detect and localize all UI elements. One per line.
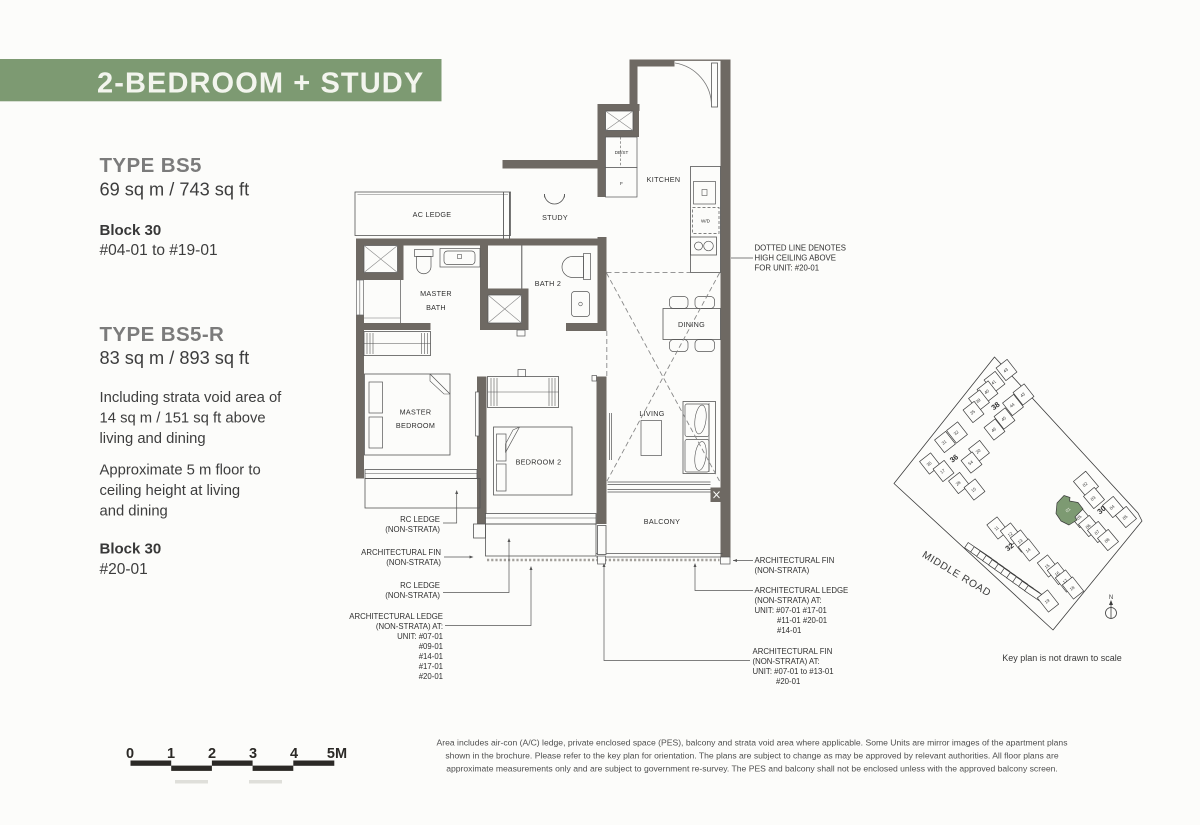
svg-text:4: 4 [290,746,298,762]
svg-text:2: 2 [208,746,216,762]
svg-text:2-BEDROOM + STUDY: 2-BEDROOM + STUDY [97,68,424,100]
svg-text:HIGH CEILING ABOVE: HIGH CEILING ABOVE [755,254,836,263]
svg-text:DOTTED LINE DENOTES: DOTTED LINE DENOTES [755,244,846,253]
svg-text:ARCHITECTURAL LEDGE: ARCHITECTURAL LEDGE [349,612,443,621]
svg-text:3: 3 [249,746,257,762]
svg-text:#20-01: #20-01 [100,561,148,578]
svg-text:BEDROOM: BEDROOM [396,421,435,430]
svg-text:0: 0 [126,746,134,762]
svg-text:and dining: and dining [100,504,168,520]
svg-text:MASTER: MASTER [420,289,452,298]
svg-text:#20-01: #20-01 [776,677,800,686]
svg-text:14 sq m / 151 sq ft above: 14 sq m / 151 sq ft above [100,411,266,427]
svg-text:LIVING: LIVING [639,409,664,418]
svg-text:RC LEDGE: RC LEDGE [400,581,440,590]
svg-text:(NON-STRATA) AT:: (NON-STRATA) AT: [755,596,822,605]
svg-text:shown in the brochure. Please: shown in the brochure. Please refer to t… [445,751,1058,761]
svg-text:Block 30: Block 30 [100,541,162,558]
svg-text:UNIT: #07-01: UNIT: #07-01 [397,632,443,641]
svg-text:UNIT: #07-01 to #13-01: UNIT: #07-01 to #13-01 [753,667,834,676]
svg-text:5M: 5M [327,746,347,762]
svg-text:FOR UNIT: #20-01: FOR UNIT: #20-01 [755,264,820,273]
svg-text:1: 1 [167,746,175,762]
svg-text:Area includes air-con (A/C) le: Area includes air-con (A/C) ledge, priva… [437,738,1068,748]
svg-text:ARCHITECTURAL LEDGE: ARCHITECTURAL LEDGE [755,586,849,595]
svg-text:BATH 2: BATH 2 [535,279,561,288]
svg-text:#17-01: #17-01 [419,662,443,671]
svg-text:#14-01: #14-01 [419,652,443,661]
svg-text:MASTER: MASTER [400,408,432,417]
svg-text:(NON-STRATA): (NON-STRATA) [385,525,440,534]
svg-text:#20-01: #20-01 [419,672,443,681]
svg-text:BEDROOM 2: BEDROOM 2 [516,458,562,467]
svg-text:#09-01: #09-01 [419,642,443,651]
svg-text:ARCHITECTURAL FIN: ARCHITECTURAL FIN [755,556,835,565]
svg-text:TYPE BS5-R: TYPE BS5-R [100,323,225,346]
svg-text:(NON-STRATA): (NON-STRATA) [755,566,810,575]
svg-text:ceiling height at living: ceiling height at living [100,483,241,499]
svg-text:#04-01 to #19-01: #04-01 to #19-01 [100,242,218,259]
svg-text:KITCHEN: KITCHEN [647,175,681,184]
svg-text:living and dining: living and dining [100,431,206,447]
svg-text:approximate measurements only: approximate measurements only and are su… [446,764,1058,774]
svg-text:TYPE BS5: TYPE BS5 [100,154,202,177]
svg-text:BATH: BATH [426,303,446,312]
svg-text:F: F [620,181,623,187]
svg-text:ARCHITECTURAL FIN: ARCHITECTURAL FIN [361,548,441,557]
svg-text:ARCHITECTURAL FIN: ARCHITECTURAL FIN [753,647,833,656]
svg-text:N: N [1109,595,1113,601]
svg-text:(NON-STRATA) AT:: (NON-STRATA) AT: [753,657,820,666]
svg-text:83 sq m / 893 sq ft: 83 sq m / 893 sq ft [100,348,250,368]
svg-text:Including strata void area of: Including strata void area of [100,390,283,406]
svg-text:Block 30: Block 30 [100,222,162,239]
svg-text:DB/ST: DB/ST [615,150,629,155]
svg-text:UNIT: #07-01 #17-01: UNIT: #07-01 #17-01 [755,606,827,615]
svg-text:RC LEDGE: RC LEDGE [400,515,440,524]
svg-text:#14-01: #14-01 [777,626,801,635]
svg-text:AC LEDGE: AC LEDGE [413,210,452,219]
svg-text:BALCONY: BALCONY [644,517,680,526]
svg-text:W/D: W/D [701,219,711,224]
svg-text:Key plan is not drawn to scale: Key plan is not drawn to scale [1002,653,1122,663]
svg-text:(NON-STRATA): (NON-STRATA) [385,591,440,600]
svg-text:#11-01 #20-01: #11-01 #20-01 [777,616,827,625]
svg-text:STUDY: STUDY [542,213,568,222]
svg-text:69 sq m / 743 sq ft: 69 sq m / 743 sq ft [100,180,250,200]
svg-text:Approximate 5 m floor to: Approximate 5 m floor to [100,463,261,479]
svg-text:(NON-STRATA): (NON-STRATA) [386,558,441,567]
svg-text:(NON-STRATA) AT:: (NON-STRATA) AT: [376,622,443,631]
